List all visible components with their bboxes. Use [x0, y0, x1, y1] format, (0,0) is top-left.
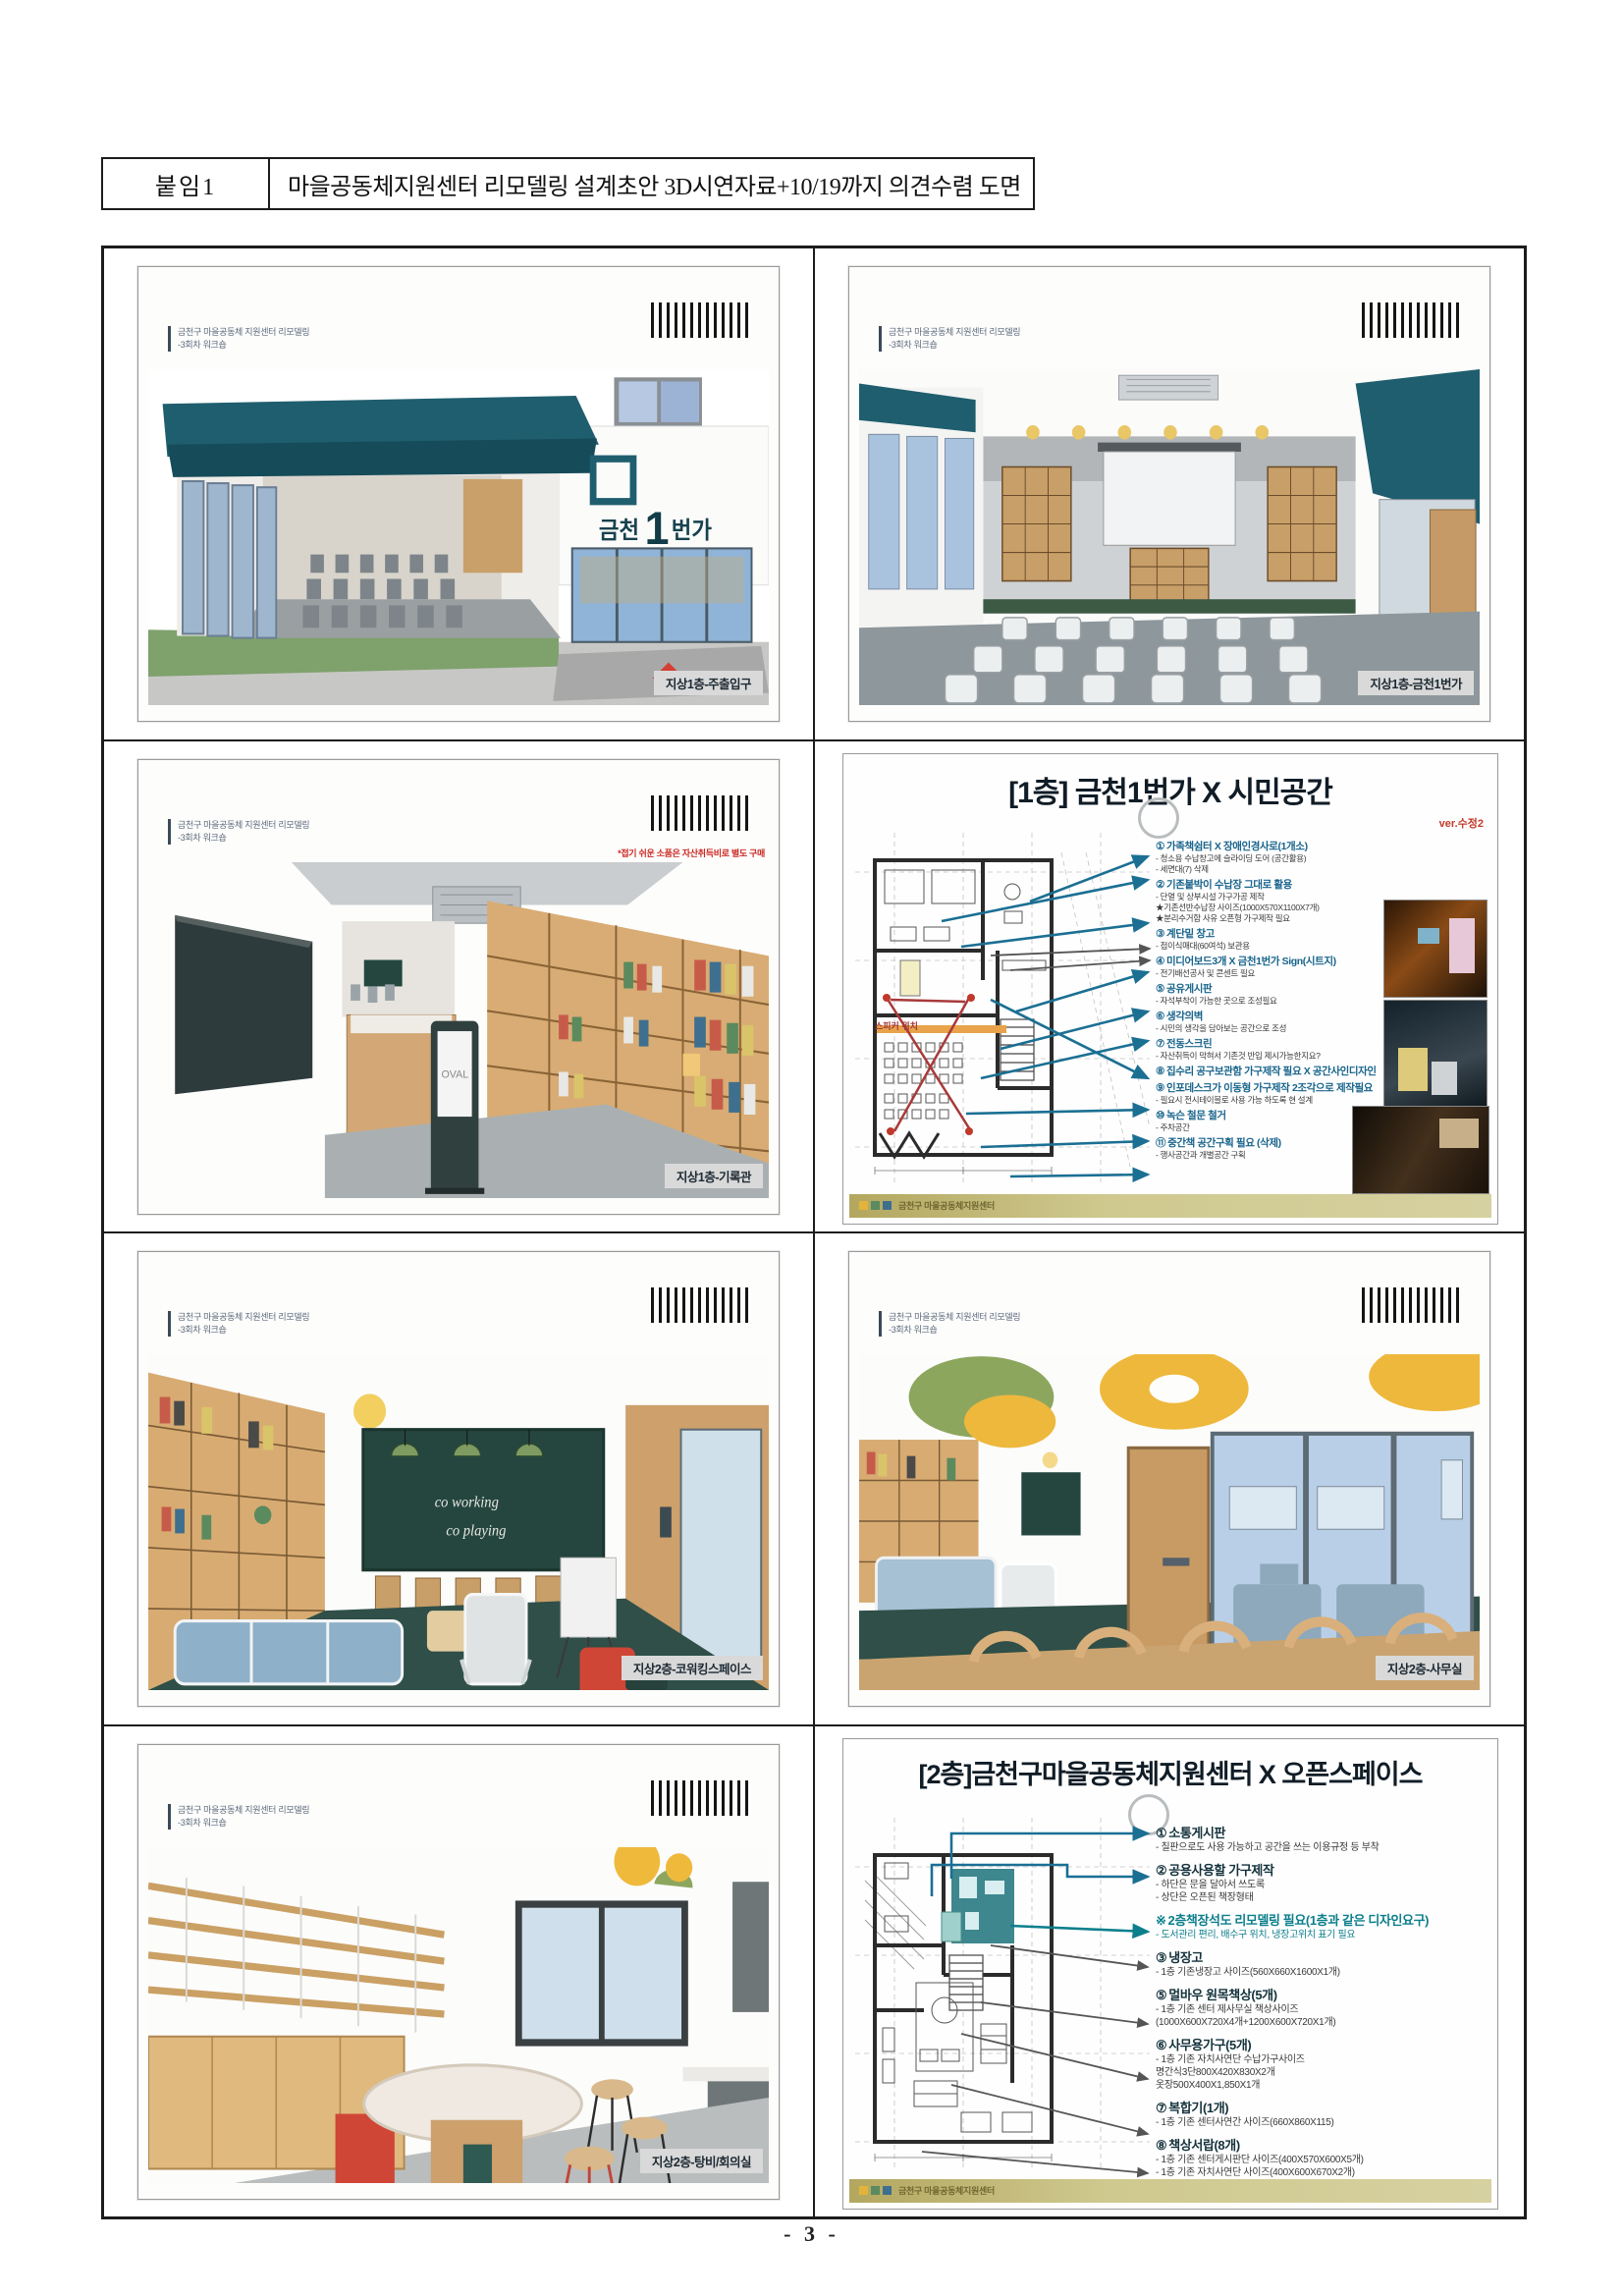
slide-footer-logo-band: 금천구 마을공동체지원센터: [849, 1194, 1491, 1218]
archive-rendering-image: OVAL: [148, 862, 769, 1198]
barcode-icon: [651, 1287, 753, 1323]
sign-text-prefix: 금천: [599, 517, 639, 543]
logo-icon: [871, 2186, 880, 2195]
photo-thumbnail: [1383, 900, 1488, 998]
sign-text-big: 1: [645, 502, 670, 555]
page-title: 마을공동체지원센터 리모델링 설계초안 3D시연자료+10/19까지 의견수렴 …: [270, 159, 1033, 208]
slide-header: 금천구 마을공동체 지원센터 리모델링 -3회차 워크숍: [879, 1311, 1020, 1337]
pantry-rendering-image: [148, 1847, 769, 2183]
slide-entrance: 금천구 마을공동체 지원센터 리모델링 -3회차 워크숍: [137, 266, 780, 722]
slide-header: 금천구 마을공동체 지원센터 리모델링 -3회차 워크숍: [168, 326, 309, 352]
slide-footer-logo-band: 금천구 마을공동체지원센터: [849, 2179, 1491, 2203]
page-number: - 3 -: [0, 2221, 1623, 2247]
slide-caption: 지상2층-사무실: [1376, 1656, 1474, 1680]
cell-entrance: 금천구 마을공동체 지원센터 리모델링 -3회차 워크숍: [103, 247, 814, 740]
slide-office: 금천구 마을공동체 지원센터 리모델링 -3회차 워크숍: [848, 1251, 1490, 1707]
entrance-rendering-image: 금천 1 번가: [148, 369, 769, 705]
photo-thumbnail: [1352, 1106, 1489, 1194]
annotation-item: ①소통게시판 - 칠판으로도 사용 가능하고 공간을 쓰는 이용규정 등 부착: [1156, 1826, 1488, 1854]
floor-plan-1f-drawing: [855, 833, 1150, 1186]
slide-plan-1f: [1층] 금천1번가 X 시민공간 ver.수정2: [842, 753, 1498, 1225]
chalkboard-line-1: co working: [435, 1495, 500, 1511]
chalkboard-line-2: co playing: [446, 1523, 507, 1540]
logo-icon: [883, 2186, 892, 2195]
cell-archive: 금천구 마을공동체 지원센터 리모델링 -3회차 워크숍 *접기 쉬운 소품은 …: [103, 740, 814, 1233]
photo-thumbnail: [1383, 1000, 1488, 1110]
sign-text-suffix: 번가: [672, 517, 712, 543]
asset-purchase-note: *접기 쉬운 소품은 자산취득비로 별도 구매: [618, 847, 765, 859]
cell-pantry: 금천구 마을공동체 지원센터 리모델링 -3회차 워크숍: [103, 1725, 814, 2218]
slide-caption: 지상1층-기록관: [665, 1164, 763, 1188]
slide-caption: 지상2층-탕비/회의실: [640, 2149, 763, 2173]
rendering-coworking: co working co playing: [148, 1354, 769, 1690]
speaker-position-label: 스피커 위치: [875, 1019, 918, 1032]
slide-coworking: 금천구 마을공동체 지원센터 리모델링 -3회차 워크숍: [137, 1251, 780, 1707]
cell-plan-2f: [2층]금천구마을공동체지원센터 X 오픈스페이스: [814, 1725, 1525, 2218]
logo-icon: [871, 1201, 880, 1210]
logo-icon: [859, 2186, 868, 2195]
plan-2f-title: [2층]금천구마을공동체지원센터 X 오픈스페이스: [843, 1753, 1497, 1791]
attachment-header: 붙임1 마을공동체지원센터 리모델링 설계초안 3D시연자료+10/19까지 의…: [101, 157, 1035, 210]
barcode-icon: [651, 795, 753, 831]
cell-office: 금천구 마을공동체 지원센터 리모델링 -3회차 워크숍: [814, 1232, 1525, 1725]
logo-icon: [883, 1201, 892, 1210]
barcode-icon: [651, 302, 753, 338]
annotation-item: ⑦복합기(1개) - 1층 기존 센터사연간 사이즈(660X860X115): [1156, 2101, 1488, 2129]
annotation-item: ⑤멀바우 원목책상(5개) - 1층 기존 센터 제사무실 책상사이즈(1000…: [1156, 1988, 1488, 2029]
cell-hall: 금천구 마을공동체 지원센터 리모델링 -3회차 워크숍: [814, 247, 1525, 740]
slide-pantry: 금천구 마을공동체 지원센터 리모델링 -3회차 워크숍: [137, 1744, 780, 2200]
annotation-item: ③냉장고 - 1층 기존냉장고 사이즈(560X660X1600X1개): [1156, 1950, 1488, 1979]
slide-caption: 지상1층-금천1번가: [1358, 671, 1474, 695]
slide-header: 금천구 마을공동체 지원센터 리모델링 -3회차 워크숍: [879, 326, 1020, 352]
barcode-icon: [1362, 302, 1464, 338]
annotation-item: ②공용사용할 가구제작 - 하단은 문을 달아서 쓰도록- 상단은 오픈된 책장…: [1156, 1863, 1488, 1904]
floor-plan-2f: [855, 1818, 1150, 2171]
annotation-item: ①가족책쉼터 X 장애인경사로(1개소) - 청소용 수납창고에 슬라이딩 도어…: [1156, 841, 1488, 875]
office-rendering-image: [859, 1354, 1480, 1690]
annotation-item: ※2층책장석도 리모델링 필요(1층과 같은 디자인요구) - 도서관리 편리,…: [1156, 1913, 1488, 1941]
barcode-icon: [651, 1780, 753, 1816]
floor-plan-1f: 스피커 위치: [855, 833, 1150, 1186]
annotation-item: ⑥사무용가구(5개) - 1층 기존 자치사연단 수납가구사이즈명간식3단800…: [1156, 2038, 1488, 2092]
rendering-hall: 지상1층-금천1번가: [859, 369, 1480, 705]
cell-plan-1f: [1층] 금천1번가 X 시민공간 ver.수정2: [814, 740, 1525, 1233]
hall-rendering-image: [859, 369, 1480, 705]
attachment-label: 붙임1: [103, 159, 270, 208]
rendering-pantry: 지상2층-탕비/회의실: [148, 1847, 769, 2183]
footer-logo-text: 금천구 마을공동체지원센터: [898, 2184, 995, 2197]
rendering-archive: OVAL 지상1층-기록관: [148, 862, 769, 1198]
slide-header: 금천구 마을공동체 지원센터 리모델링 -3회차 워크숍: [168, 1311, 309, 1337]
slide-caption: 지상1층-주출입구: [654, 671, 763, 695]
slide-header: 금천구 마을공동체 지원센터 리모델링 -3회차 워크숍: [168, 1804, 309, 1830]
barcode-icon: [1362, 1287, 1464, 1323]
cell-coworking: 금천구 마을공동체 지원센터 리모델링 -3회차 워크숍: [103, 1232, 814, 1725]
floor-plan-2f-drawing: [855, 1818, 1150, 2171]
slide-hall: 금천구 마을공동체 지원센터 리모델링 -3회차 워크숍: [848, 266, 1490, 722]
rendering-office: 지상2층-사무실: [859, 1354, 1480, 1690]
annotation-list-2f: ①소통게시판 - 칠판으로도 사용 가능하고 공간을 쓰는 이용규정 등 부착 …: [1156, 1826, 1488, 2201]
version-label: ver.수정2: [1439, 815, 1484, 831]
logo-icon: [859, 1201, 868, 1210]
kiosk-screen-label: OVAL: [441, 1068, 468, 1080]
footer-logo-text: 금천구 마을공동체지원센터: [898, 1199, 995, 1212]
slide-archive: 금천구 마을공동체 지원센터 리모델링 -3회차 워크숍 *접기 쉬운 소품은 …: [137, 759, 780, 1215]
document-page: 붙임1 마을공동체지원센터 리모델링 설계초안 3D시연자료+10/19까지 의…: [0, 0, 1623, 2296]
slide-plan-2f: [2층]금천구마을공동체지원센터 X 오픈스페이스: [842, 1738, 1498, 2210]
coworking-rendering-image: co working co playing: [148, 1354, 769, 1690]
slide-header: 금천구 마을공동체 지원센터 리모델링 -3회차 워크숍: [168, 819, 309, 845]
rendering-entrance: 금천 1 번가 지상1층-주출입구: [148, 369, 769, 705]
slide-grid: 금천구 마을공동체 지원센터 리모델링 -3회차 워크숍: [101, 246, 1527, 2219]
slide-caption: 지상2층-코워킹스페이스: [622, 1656, 763, 1680]
